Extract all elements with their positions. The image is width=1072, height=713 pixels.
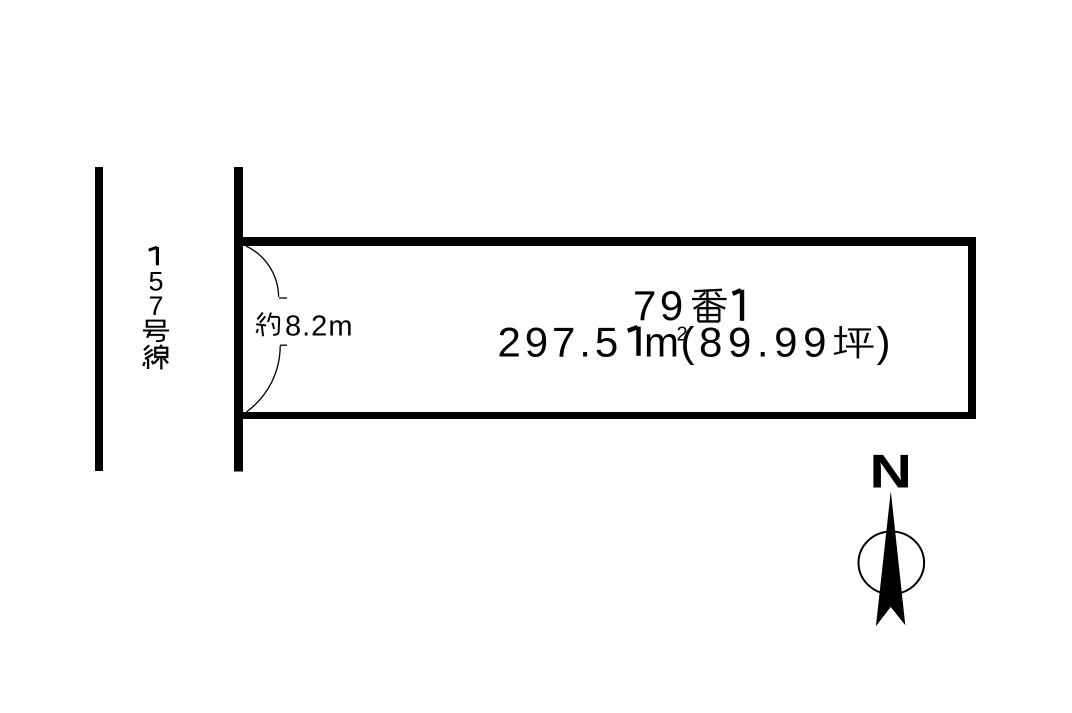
svg-text:7: 7	[148, 291, 163, 321]
svg-text:89.99: 89.99	[699, 318, 832, 365]
svg-text:(: (	[681, 318, 695, 365]
svg-text:m: m	[644, 318, 679, 365]
svg-text:297.5: 297.5	[498, 318, 623, 365]
svg-text:8.2m: 8.2m	[285, 310, 353, 342]
svg-text:): )	[877, 318, 891, 365]
svg-text:N: N	[870, 446, 912, 498]
